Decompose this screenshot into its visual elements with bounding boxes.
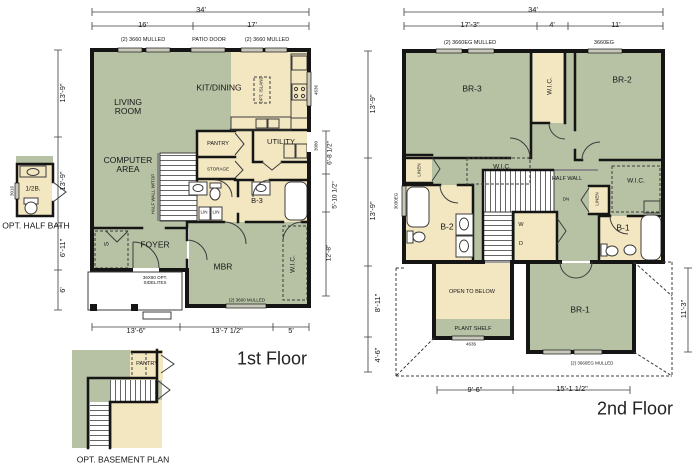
ff-dim-bottom-1: 13'-6"	[126, 327, 145, 335]
ff-room-living: LIVING ROOM	[106, 98, 150, 116]
sf-half-wall-label: HALF WALL	[552, 177, 582, 183]
ff-dim-right-3: 12'-8"	[325, 245, 332, 262]
ff-dim-total: 34'	[196, 6, 206, 14]
sf-dim-top-left: 17'-3"	[460, 21, 479, 29]
ff-dim-top-right: 17'	[247, 21, 257, 29]
ff-mbr-window-label: (2) 3660 MULLED	[229, 299, 265, 304]
ob-pantry-label: PANTRY	[136, 362, 158, 368]
ff-room-mbr: MBR	[214, 262, 233, 271]
ff-dim-right-2: 5'-10 1/2"	[331, 181, 338, 208]
sf-wic-center-label: W.I.C.	[546, 77, 553, 95]
sf-dim-left-4: 4'-6"	[374, 348, 382, 363]
sf-dn-label: DN	[563, 198, 570, 203]
ff-opt-island-label: OPT. ISLAND	[260, 76, 265, 104]
ff-window-label-right: (2) 3660 MULLED	[245, 38, 289, 44]
ff-wic-label: W.I.C.	[289, 255, 296, 273]
ff-room-kitchen: KIT/DINING	[196, 83, 241, 92]
ff-patio-door-label: PATIO DOOR	[192, 38, 226, 44]
ff-dim-left-4: 6'	[59, 287, 67, 293]
ff-window-label-left: (2) 3660 MULLED	[121, 38, 165, 44]
sf-room-br2: BR-2	[612, 75, 631, 84]
ff-dim-left-1: 13'-9"	[59, 83, 67, 102]
ff-dim-left-2: 13'-9"	[59, 171, 67, 190]
sf-wic-left-label: W.I.C.	[493, 163, 511, 170]
sf-dim-left-3: 8'-11"	[374, 294, 382, 313]
sf-room-b2: B-2	[440, 222, 453, 231]
floor-plan-sheet: 34' 16' 17' (2) 3660 MULLED PATIO DOOR (…	[0, 0, 700, 470]
sf-room-b1: B-1	[616, 223, 629, 232]
ff-linen-2-label: LIN	[212, 211, 219, 216]
opt-half-bath-caption: OPT. HALF BATH	[2, 221, 69, 230]
ohb-window-label: 3016	[11, 186, 16, 196]
first-floor-geometry	[54, 8, 330, 331]
floorplan-drawing	[0, 0, 700, 470]
sf-plant-shelf-label: PLANT SHELF	[455, 327, 492, 333]
sf-left-window-label: 3030EG	[395, 193, 400, 210]
opt-basement-geometry	[72, 350, 174, 448]
sf-plant-window-label: 4636	[466, 343, 476, 348]
ff-front-door-label: 36X80 OPT. SIDELITES	[134, 276, 176, 286]
sf-dryer-label: D	[519, 242, 523, 248]
second-floor-geometry	[364, 8, 692, 394]
ff-utility-door-label: 3080	[315, 141, 320, 151]
ohb-room-label: 1/2B.	[25, 185, 40, 192]
ff-dim-top-left: 16'	[138, 21, 148, 29]
ff-dim-bottom-2: 13'-7 1/2"	[211, 327, 243, 335]
second-floor-caption: 2nd Floor	[597, 399, 673, 418]
sf-dim-top-mid: 4'	[549, 21, 555, 29]
sf-room-br1: BR-1	[570, 305, 589, 314]
sf-dim-bottom-2: 15'-1 1/2"	[556, 385, 588, 393]
ff-room-bath: B-3	[251, 197, 263, 205]
sf-linen-right-label: LINEN	[596, 192, 601, 205]
sf-br3-window-label: (2) 3660EG MULLED	[444, 41, 496, 47]
sf-washer-label: W	[518, 223, 523, 229]
opt-basement-caption: OPT. BASEMENT PLAN	[77, 455, 169, 464]
ff-dim-left-3: 6'-11"	[59, 239, 67, 258]
ff-dim-bottom-3: 5'	[288, 327, 294, 335]
ff-room-pantry: PANTRY	[207, 142, 229, 148]
sf-open-below-label: OPEN TO BELOW	[449, 290, 495, 296]
ff-closet-label: S	[103, 242, 110, 246]
sf-dim-left-1: 13'-9"	[369, 94, 377, 113]
sf-linen-left-label: LINEN	[418, 163, 423, 176]
sf-dim-left-2: 13'-9"	[369, 201, 377, 220]
sf-dim-top-right: 11'	[611, 21, 620, 29]
ff-half-wall-label: HALF WALL W/TOP	[152, 174, 157, 215]
sf-dim-total: 34'	[528, 6, 538, 14]
ff-dim-right-1: 6'-8 1/2"	[326, 141, 333, 165]
sf-br1-window-label: (2) 3660EG MULLED	[571, 362, 614, 367]
sf-dim-bottom-1: 9'-6"	[468, 386, 483, 394]
ff-room-computer: COMPUTER AREA	[97, 156, 159, 174]
ff-kitchen-window-label: 4636	[315, 85, 320, 95]
ff-room-foyer: FOYER	[140, 240, 169, 249]
ff-room-utility: UTILITY	[267, 138, 295, 146]
ff-linen-1-label: LIN	[200, 211, 207, 216]
sf-br2-window-label: 3660EG	[594, 41, 614, 47]
first-floor-caption: 1st Floor	[237, 349, 307, 368]
sf-wic-right-label: W.I.C.	[627, 177, 645, 184]
sf-room-br3: BR-3	[462, 84, 481, 93]
ff-room-storage: STORAGE	[207, 168, 229, 173]
sf-dim-right-1: 11'-3"	[680, 300, 688, 319]
